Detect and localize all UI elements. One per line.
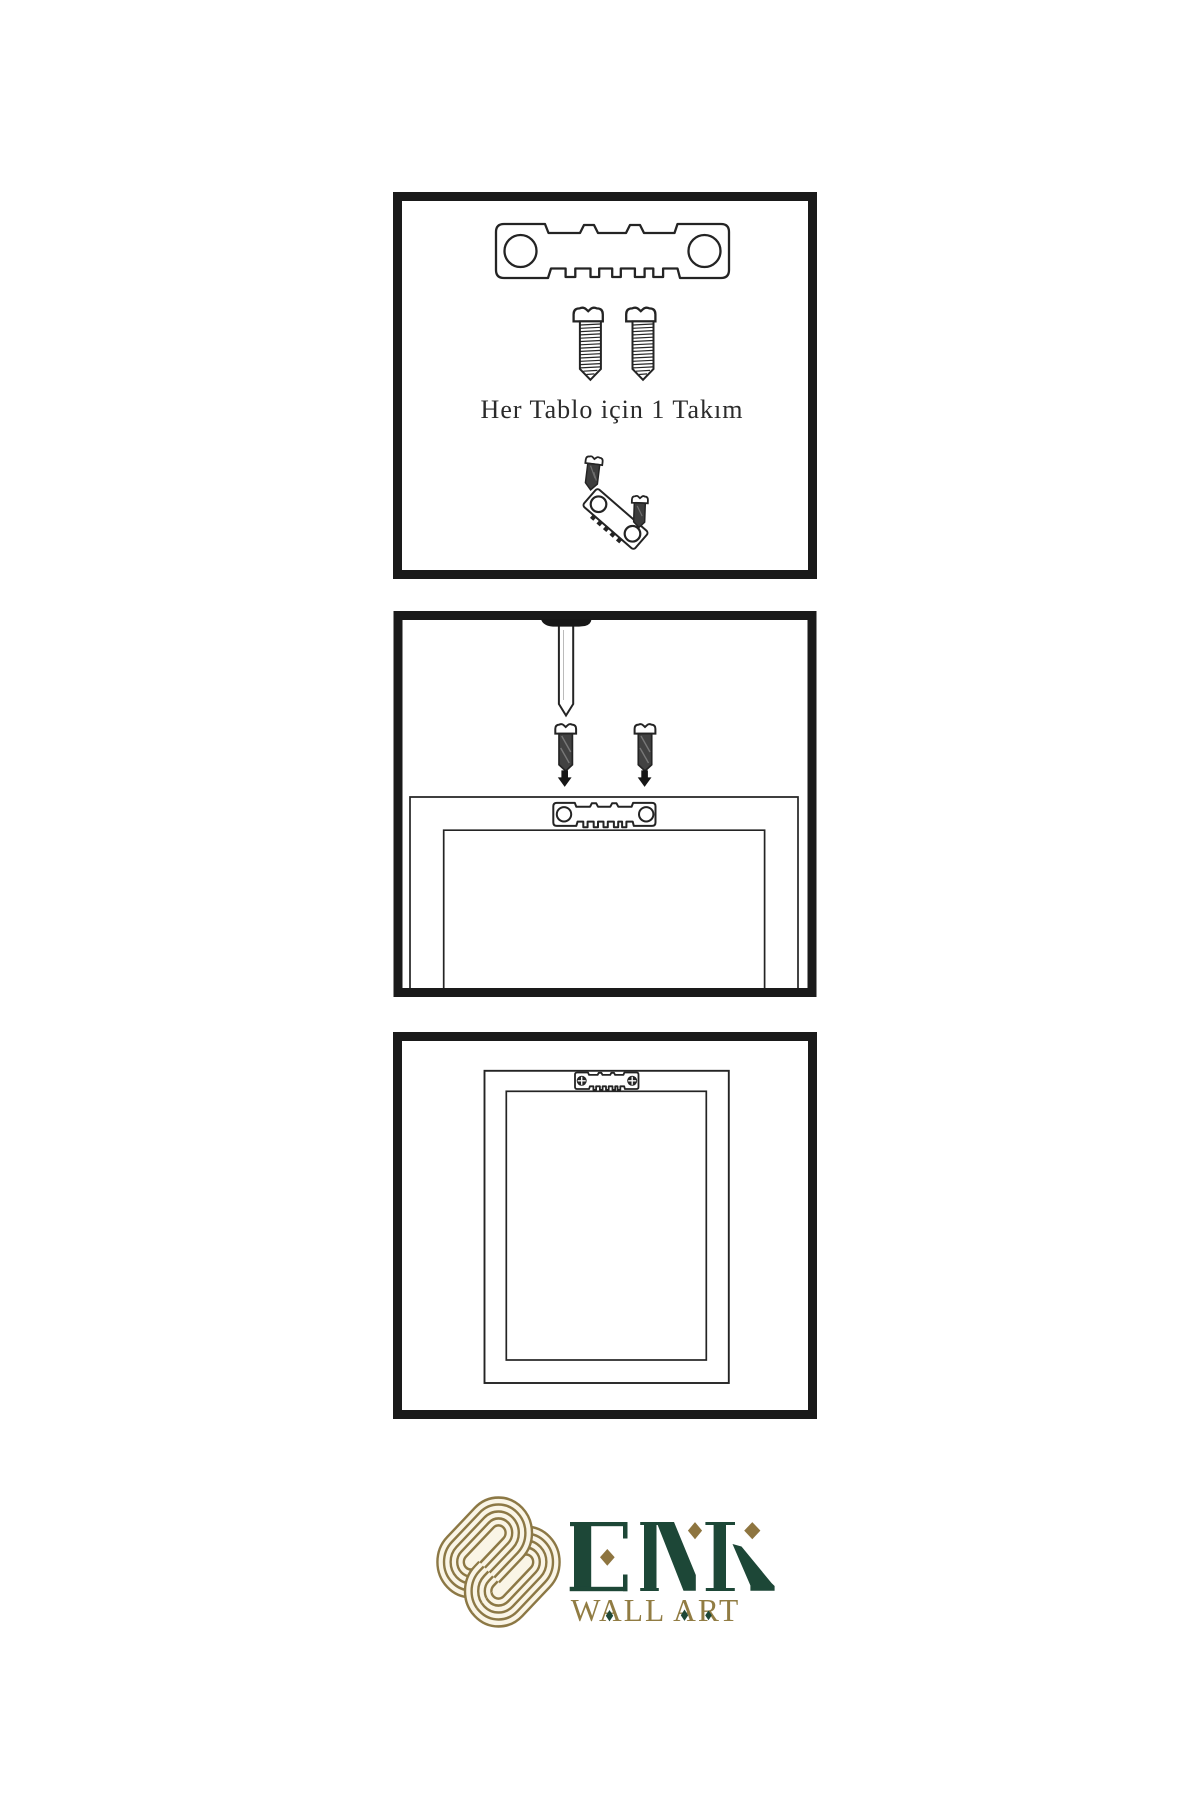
svg-text:WALL ART: WALL ART bbox=[571, 1593, 741, 1628]
svg-text:Her Tablo için 1 Takım: Her Tablo için 1 Takım bbox=[481, 395, 744, 424]
